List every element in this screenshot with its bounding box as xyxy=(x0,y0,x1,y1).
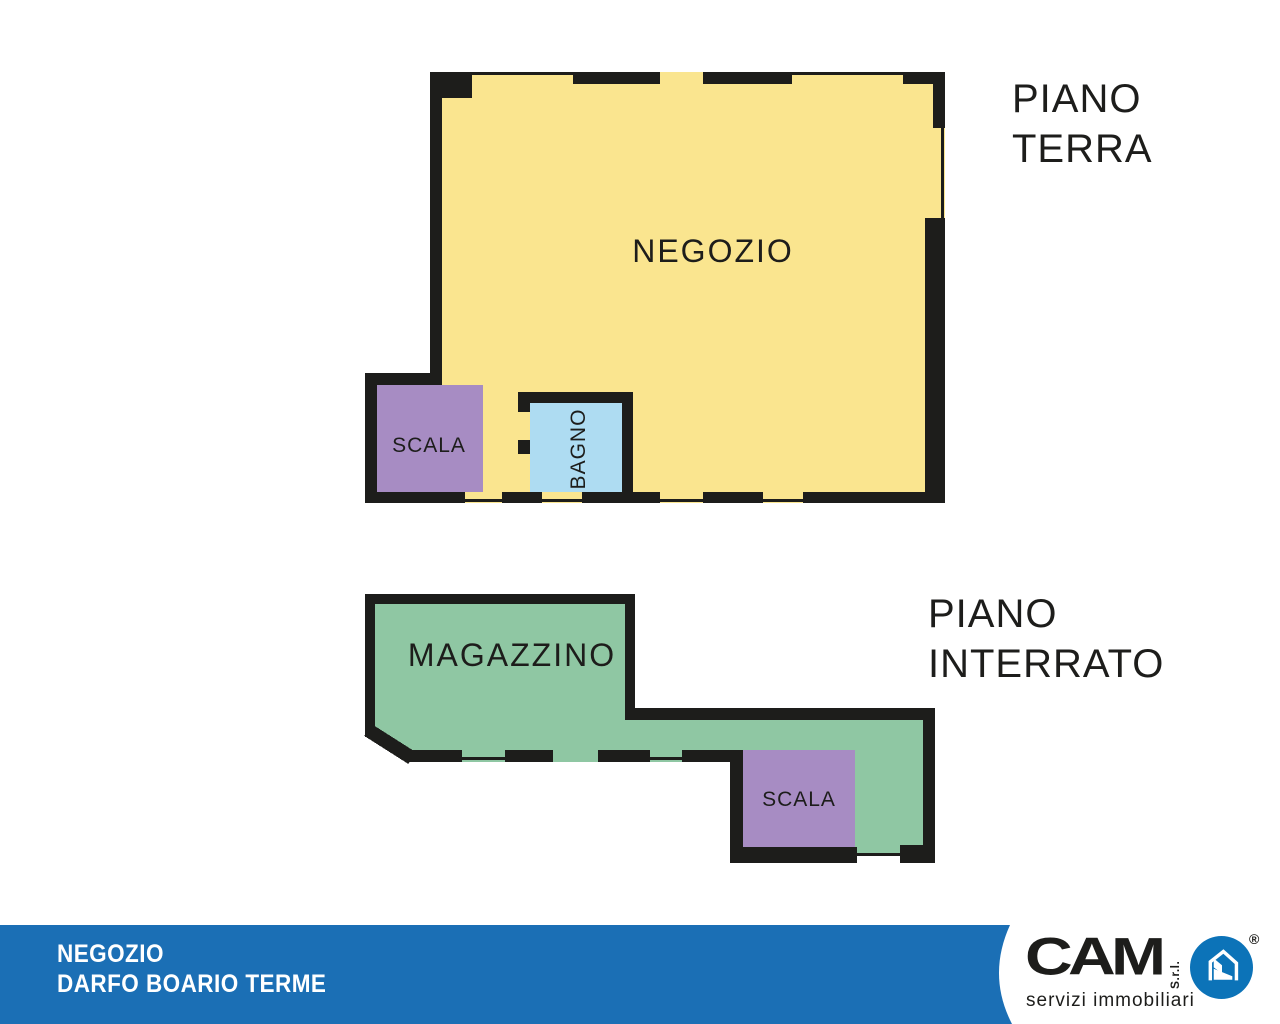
room-label-scala-terra: SCALA xyxy=(392,434,466,457)
window-line xyxy=(763,499,803,502)
wall-segment xyxy=(518,392,633,403)
floor-plan-piano-interrato: MAGAZZINO SCALA xyxy=(360,585,950,875)
title-line: INTERRATO xyxy=(928,639,1164,689)
wall-segment xyxy=(518,392,530,412)
wall-segment xyxy=(703,72,792,84)
room-label-scala-interrato: SCALA xyxy=(762,788,836,811)
room-label-magazzino: MAGAZZINO xyxy=(408,637,616,673)
property-caption: NEGOZIO DARFO BOARIO TERME xyxy=(57,939,326,999)
window-line xyxy=(792,72,903,75)
room-label-bagno: BAGNO xyxy=(567,409,590,490)
wall-segment xyxy=(625,708,935,720)
title-line: TERRA xyxy=(1012,124,1153,174)
wall-segment xyxy=(365,373,377,503)
wall-segment xyxy=(365,594,635,604)
cam-logo-legal-suffix: S.r.l. xyxy=(1168,961,1182,989)
wall-segment xyxy=(703,492,763,503)
title-piano-terra: PIANO TERRA xyxy=(1012,74,1153,174)
wall-segment xyxy=(923,708,935,863)
wall-segment xyxy=(803,492,945,503)
wall-segment xyxy=(365,492,465,503)
cam-logo-tagline: servizi immobiliari xyxy=(1026,990,1195,1012)
window-line xyxy=(465,499,502,502)
title-line: PIANO xyxy=(1012,74,1153,124)
wall-segment xyxy=(625,594,635,714)
window-line xyxy=(857,853,900,856)
title-piano-interrato: PIANO INTERRATO xyxy=(928,589,1164,689)
wall-segment xyxy=(925,218,945,503)
house-icon xyxy=(1200,946,1244,990)
property-type: NEGOZIO xyxy=(57,939,326,969)
wall-segment xyxy=(730,750,743,863)
window-line xyxy=(660,499,703,502)
window-line xyxy=(462,757,505,760)
wall-segment xyxy=(505,750,553,762)
wall-segment xyxy=(365,594,375,737)
wall-segment xyxy=(408,750,462,762)
floor-plan-piano-terra: NEGOZIO SCALA BAGNO xyxy=(360,60,960,510)
wall-segment xyxy=(502,492,542,503)
wall-segment xyxy=(573,72,660,84)
room-label-negozio: NEGOZIO xyxy=(632,233,794,269)
wall-segment xyxy=(518,440,530,454)
window-line xyxy=(542,499,582,502)
cam-logo-wordmark: CAM xyxy=(1025,928,1161,985)
wall-segment xyxy=(430,72,442,373)
wall-segment xyxy=(730,847,857,863)
wall-segment xyxy=(933,72,945,128)
window-line xyxy=(650,757,682,760)
floor-plan-flyer: NEGOZIO SCALA BAGNO MAGA xyxy=(0,0,1280,1024)
property-location: DARFO BOARIO TERME xyxy=(57,969,326,999)
footer-bar: NEGOZIO DARFO BOARIO TERME CAM S.r.l. ® … xyxy=(0,925,1280,1024)
window-line xyxy=(472,72,573,75)
registered-trademark-symbol: ® xyxy=(1249,931,1259,947)
title-line: PIANO xyxy=(928,589,1164,639)
wall-segment xyxy=(900,845,935,863)
cam-logo-circle xyxy=(1190,936,1253,999)
wall-segment xyxy=(622,392,633,492)
window-line xyxy=(941,128,944,218)
wall-segment xyxy=(582,492,660,503)
wall-segment xyxy=(598,750,650,762)
door-gap xyxy=(857,856,900,863)
